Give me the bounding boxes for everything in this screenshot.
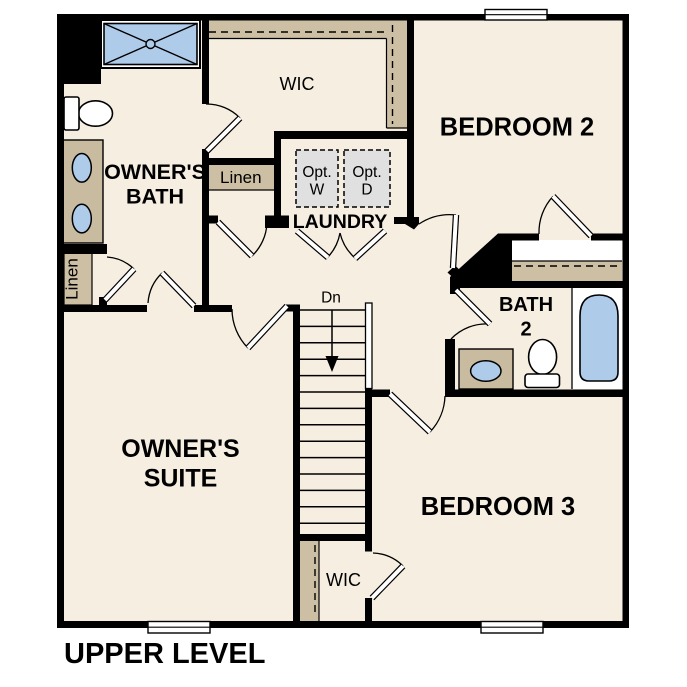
svg-text:Linen: Linen	[63, 258, 82, 300]
svg-text:OWNER'S: OWNER'S	[121, 435, 239, 463]
svg-text:SUITE: SUITE	[144, 465, 218, 493]
svg-text:Opt.: Opt.	[352, 164, 381, 181]
svg-text:2: 2	[520, 318, 531, 340]
svg-text:WIC: WIC	[280, 74, 315, 94]
svg-text:WIC: WIC	[326, 570, 361, 590]
svg-text:D: D	[361, 182, 372, 199]
svg-text:BATH: BATH	[126, 184, 184, 208]
svg-text:Opt.: Opt.	[302, 164, 331, 181]
svg-text:BATH: BATH	[499, 294, 553, 316]
svg-text:UPPER LEVEL: UPPER LEVEL	[64, 638, 265, 670]
svg-text:BEDROOM 3: BEDROOM 3	[421, 493, 575, 521]
svg-text:W: W	[310, 182, 325, 199]
svg-text:Dn: Dn	[321, 289, 341, 306]
svg-text:Linen: Linen	[220, 168, 262, 187]
svg-text:BEDROOM 2: BEDROOM 2	[440, 113, 594, 141]
svg-text:OWNER'S: OWNER'S	[104, 160, 206, 184]
svg-text:LAUNDRY: LAUNDRY	[293, 211, 388, 233]
